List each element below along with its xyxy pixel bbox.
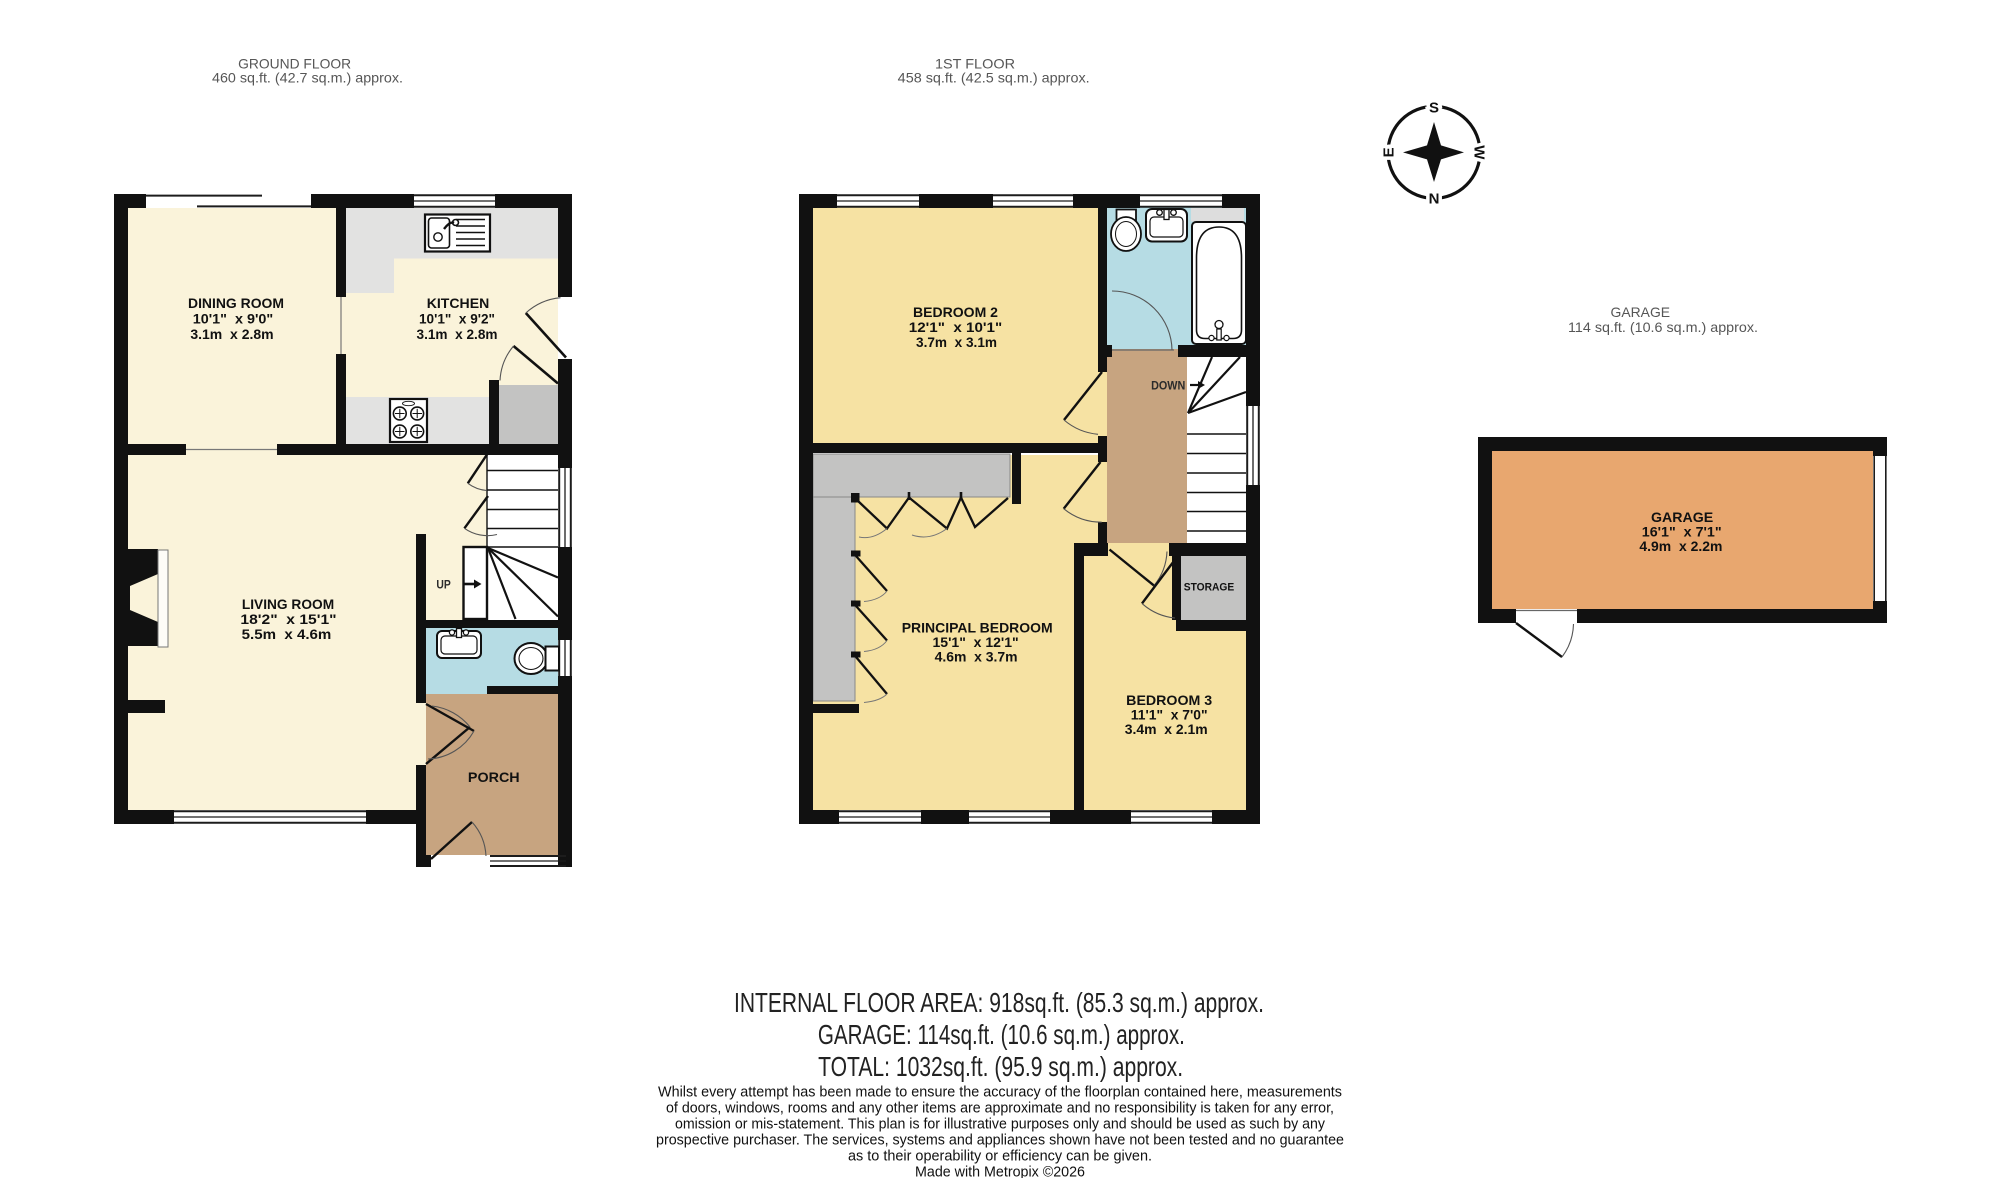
svg-text:S: S xyxy=(1429,100,1439,117)
svg-text:460 sq.ft. (42.7 sq.m.) approx: 460 sq.ft. (42.7 sq.m.) approx. xyxy=(212,70,403,86)
svg-text:Whilst every attempt has been: Whilst every attempt has been made to en… xyxy=(658,1084,1342,1101)
svg-text:Made with Metropix ©2026: Made with Metropix ©2026 xyxy=(915,1164,1085,1178)
svg-text:UP: UP xyxy=(436,578,450,592)
svg-text:114 sq.ft. (10.6 sq.m.) approx: 114 sq.ft. (10.6 sq.m.) approx. xyxy=(1568,319,1758,335)
svg-text:N: N xyxy=(1429,191,1440,208)
svg-text:PORCH: PORCH xyxy=(468,769,520,785)
svg-text:3.1m x 2.8m: 3.1m x 2.8m xyxy=(417,326,498,342)
svg-text:omission or mis-statement. Thi: omission or mis-statement. This plan is … xyxy=(675,1116,1325,1133)
svg-text:GARAGE: GARAGE xyxy=(1611,304,1671,320)
svg-text:of doors, windows, rooms and a: of doors, windows, rooms and any other i… xyxy=(666,1100,1334,1117)
svg-text:DINING ROOM: DINING ROOM xyxy=(188,295,284,311)
svg-text:3.4m x 2.1m: 3.4m x 2.1m xyxy=(1125,721,1208,737)
svg-text:5.5m x 4.6m: 5.5m x 4.6m xyxy=(242,626,332,642)
svg-text:12'1" x 10'1": 12'1" x 10'1" xyxy=(909,319,1002,335)
svg-text:STORAGE: STORAGE xyxy=(1184,582,1235,594)
svg-text:GARAGE: 114sq.ft. (10.6 sq.m.): GARAGE: 114sq.ft. (10.6 sq.m.) approx. xyxy=(818,1019,1185,1050)
svg-text:4.6m x 3.7m: 4.6m x 3.7m xyxy=(935,649,1018,665)
svg-text:W: W xyxy=(1470,145,1487,160)
svg-text:10'1" x 9'2": 10'1" x 9'2" xyxy=(419,311,495,327)
svg-text:TOTAL: 1032sq.ft. (95.9 sq.m.): TOTAL: 1032sq.ft. (95.9 sq.m.) approx. xyxy=(818,1051,1183,1082)
svg-text:prospective purchaser. The ser: prospective purchaser. The services, sys… xyxy=(656,1132,1344,1149)
svg-text:3.1m x 2.8m: 3.1m x 2.8m xyxy=(190,326,273,342)
svg-text:18'2" x 15'1": 18'2" x 15'1" xyxy=(240,611,336,627)
svg-text:3.7m x 3.1m: 3.7m x 3.1m xyxy=(916,334,997,350)
svg-text:DOWN: DOWN xyxy=(1151,379,1185,393)
svg-text:INTERNAL FLOOR AREA: 918sq.ft.: INTERNAL FLOOR AREA: 918sq.ft. (85.3 sq.… xyxy=(734,987,1264,1018)
svg-text:458 sq.ft. (42.5 sq.m.) approx: 458 sq.ft. (42.5 sq.m.) approx. xyxy=(898,70,1090,86)
svg-text:E: E xyxy=(1381,147,1398,157)
svg-text:LIVING ROOM: LIVING ROOM xyxy=(242,596,334,612)
svg-text:4.9m x 2.2m: 4.9m x 2.2m xyxy=(1639,538,1722,554)
svg-text:as to their operability or eff: as to their operability or efficiency ca… xyxy=(848,1148,1152,1165)
svg-text:10'1" x 9'0": 10'1" x 9'0" xyxy=(193,311,274,327)
svg-text:BEDROOM 2: BEDROOM 2 xyxy=(913,304,998,320)
svg-text:KITCHEN: KITCHEN xyxy=(427,295,490,311)
